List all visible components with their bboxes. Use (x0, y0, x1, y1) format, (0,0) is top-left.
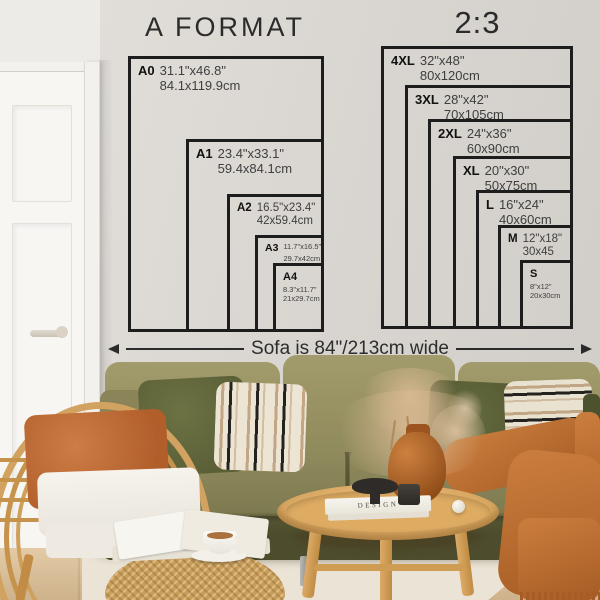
arrow-line-right (456, 348, 574, 350)
size-name: A2 (237, 202, 252, 215)
size-name: L (486, 198, 494, 213)
size-name: 4XL (391, 54, 415, 69)
size-box-s: S 8"x12" 20x30cm (520, 260, 573, 329)
size-inches: 32"x48" (420, 54, 480, 69)
size-inches: 11.7"x16.5" (283, 243, 321, 255)
size-name: A3 (265, 243, 278, 255)
size-label-a3: A3 11.7"x16.5" 29.7x42cm (265, 243, 321, 263)
arrow-left-icon (108, 344, 119, 354)
arrow-right-icon (581, 344, 592, 354)
size-cm: 60x90cm (467, 142, 520, 157)
white-sphere-decor (452, 500, 465, 513)
size-inches: 8"x12" (530, 282, 560, 291)
size-label-a4: A4 8.3"x11.7" 21x29.7cm (283, 271, 320, 304)
size-name: M (508, 233, 518, 246)
size-label-xl: XL 20"x30" 50x75cm (463, 164, 537, 193)
size-cm: 59.4x84.1cm (218, 162, 292, 177)
arrow-line-left (126, 348, 244, 350)
size-name: XL (463, 164, 480, 179)
size-inches: 16.5"x23.4" (257, 202, 316, 215)
size-name: 3XL (415, 93, 439, 108)
size-label-2xl: 2XL 24"x36" 60x90cm (438, 127, 520, 156)
size-label-m: M 12"x18" 30x45 (508, 233, 562, 259)
size-inches: 20"x30" (485, 164, 538, 179)
size-cm: 80x120cm (420, 69, 480, 84)
dried-pampas-bouquet (355, 368, 465, 432)
size-cm: 42x59.4cm (257, 215, 316, 228)
living-room-scene: A FORMAT A0 31.1"x46.8" 84.1x119.9cm A1 … (0, 0, 600, 600)
table-crossbar (314, 564, 466, 571)
a-format-chart-title: A FORMAT (100, 12, 350, 43)
black-bowl (352, 478, 398, 494)
size-label-4xl: 4XL 32"x48" 80x120cm (391, 54, 480, 83)
size-inches: 23.4"x33.1" (218, 147, 292, 162)
size-inches: 8.3"x11.7" (283, 285, 320, 294)
size-cm: 30x45 (523, 246, 563, 259)
size-name: A0 (138, 64, 155, 79)
size-inches: 12"x18" (523, 233, 563, 246)
door-panel-upper (12, 105, 72, 202)
throw-blanket-fringe (520, 592, 600, 600)
size-name: S (530, 268, 560, 282)
size-inches: 16"x24" (499, 198, 552, 213)
size-cm: 20x30cm (530, 291, 560, 300)
size-label-l: L 16"x24" 40x60cm (486, 198, 552, 227)
size-cm: 84.1x119.9cm (160, 79, 241, 94)
size-cm: 21x29.7cm (283, 294, 320, 303)
size-name: A1 (196, 147, 213, 162)
size-label-a1: A1 23.4"x33.1" 59.4x84.1cm (196, 147, 292, 176)
ratio-chart-title: 2:3 (380, 5, 575, 41)
size-label-s: S 8"x12" 20x30cm (530, 268, 560, 301)
coffee-surface (207, 532, 233, 539)
size-name: A4 (283, 271, 320, 285)
black-cup (398, 484, 420, 505)
size-label-3xl: 3XL 28"x42" 70x105cm (415, 93, 504, 122)
throw-blanket-corner (518, 518, 600, 600)
size-inches: 28"x42" (444, 93, 504, 108)
size-cm: 29.7x42cm (283, 255, 321, 263)
door-handle-rose (56, 326, 68, 338)
size-label-a2: A2 16.5"x23.4" 42x59.4cm (237, 202, 315, 228)
size-box-a4: A4 8.3"x11.7" 21x29.7cm (273, 263, 324, 332)
chair-slat (0, 518, 44, 522)
size-name: 2XL (438, 127, 462, 142)
size-inches: 31.1"x46.8" (160, 64, 241, 79)
size-label-a0: A0 31.1"x46.8" 84.1x119.9cm (138, 64, 240, 93)
size-inches: 24"x36" (467, 127, 520, 142)
pillow-striped-center (213, 381, 307, 472)
